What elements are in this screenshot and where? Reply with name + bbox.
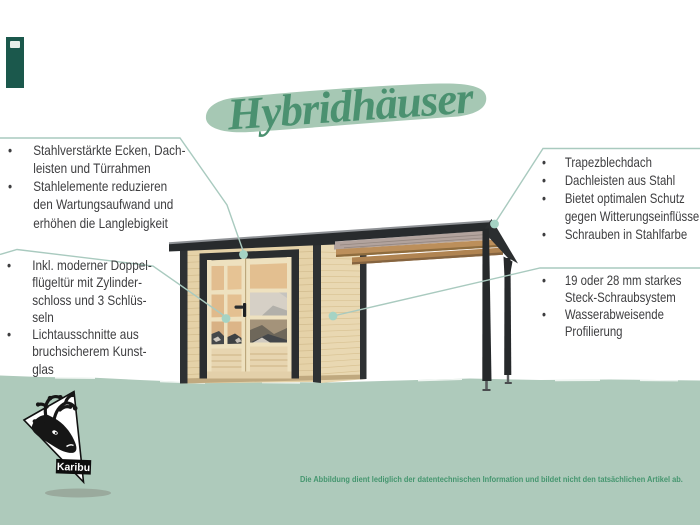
- svg-text:Karibu: Karibu: [57, 461, 91, 474]
- svg-text:Hybridhäuser: Hybridhäuser: [225, 72, 476, 139]
